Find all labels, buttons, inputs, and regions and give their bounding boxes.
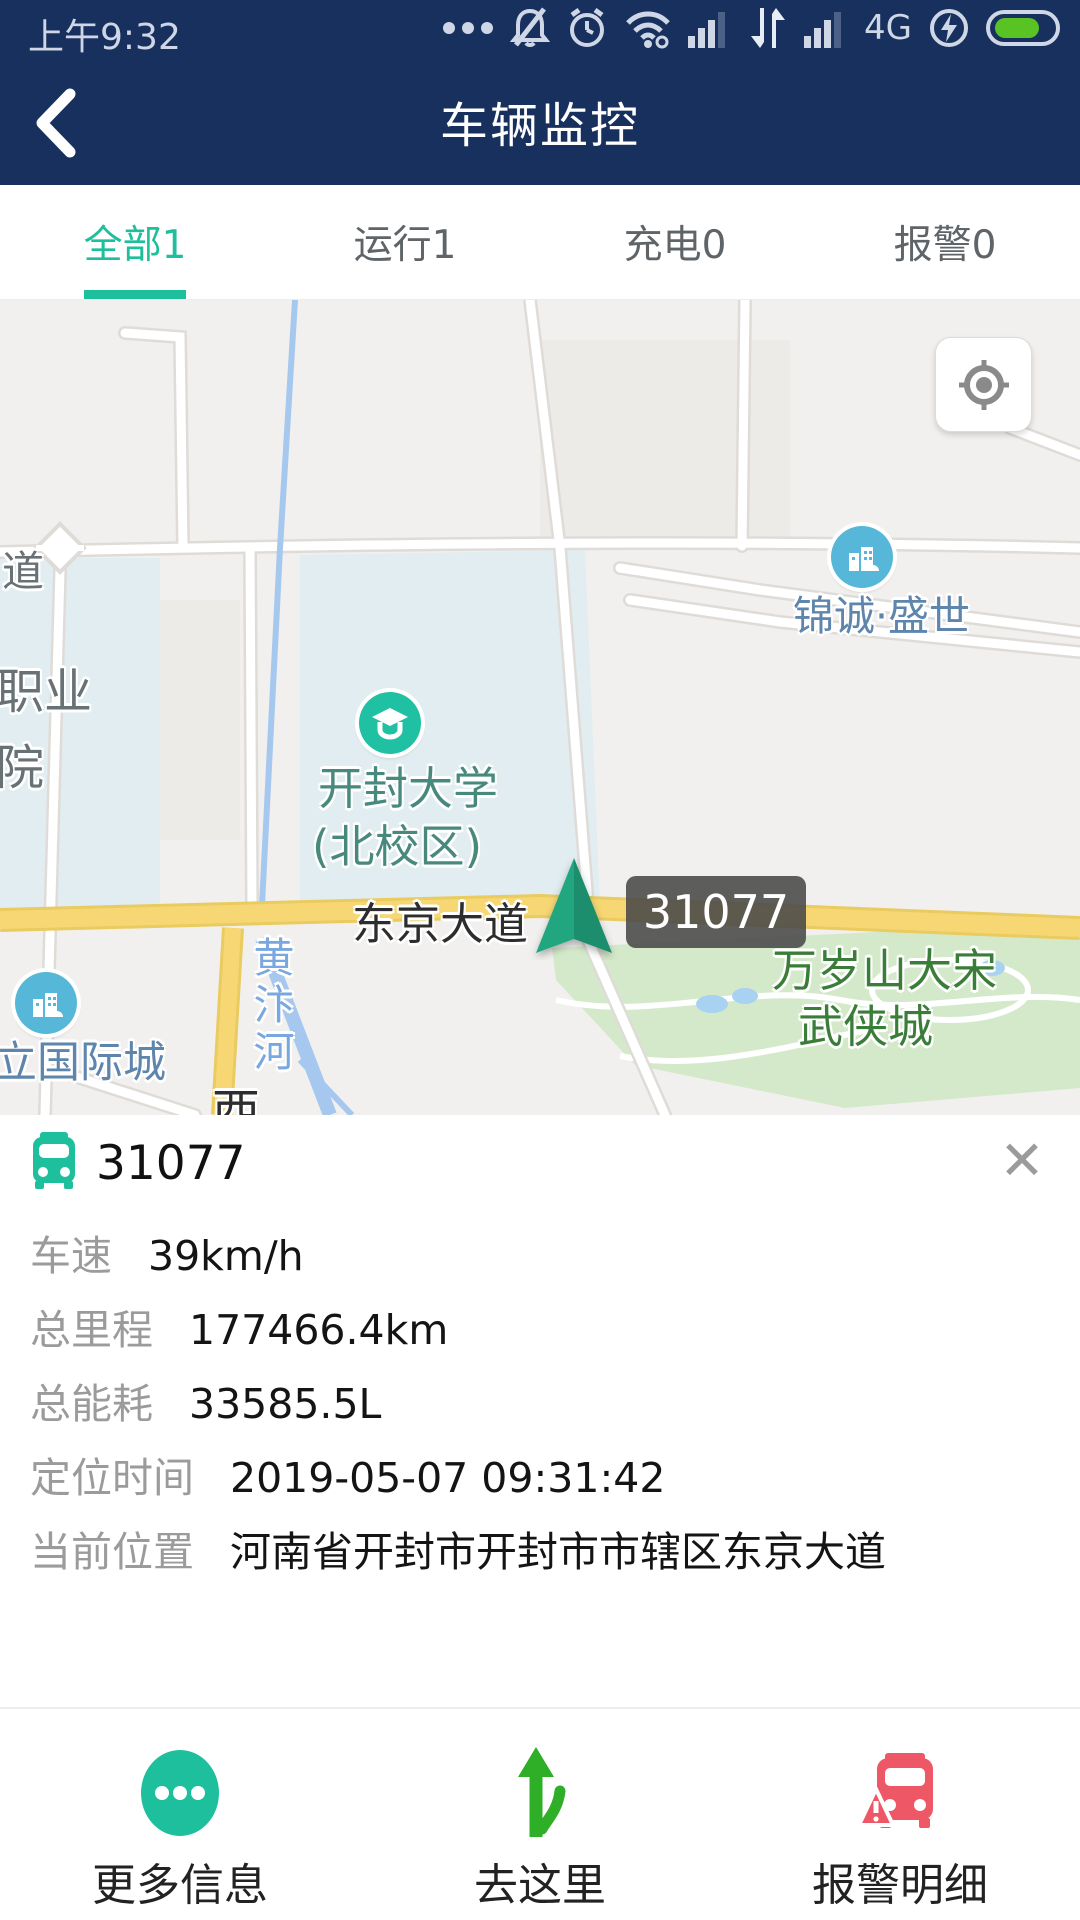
area-label-yuan: 院: [0, 728, 44, 798]
vehicle-filter-tabs: 全部1 运行1 充电0 报警0: [0, 185, 1080, 300]
park-label-line2: 武侠城: [798, 990, 933, 1055]
page-title: 车辆监控: [0, 86, 1080, 156]
wifi-icon: [624, 7, 672, 49]
tab-charging-label: 充电0: [624, 214, 727, 270]
status-icon-tray: 4G: [442, 0, 1060, 56]
vehicle-info-panel: 31077 ✕ 车速 39km/h 总里程 177466.4km 总能耗 335…: [0, 1115, 1080, 1707]
app-header: 车辆监控: [0, 56, 1080, 185]
bus-icon: [30, 1132, 78, 1190]
vehicle-tooltip[interactable]: 31077: [626, 876, 806, 948]
network-type-label: 4G: [864, 8, 912, 48]
road-label-dao: 道: [2, 538, 44, 599]
info-value: 河南省开封市开封市市辖区东京大道: [230, 1518, 886, 1578]
tab-all[interactable]: 全部1: [0, 185, 270, 299]
info-label: 车速: [30, 1222, 112, 1282]
alarm-detail-label: 报警明细: [812, 1849, 988, 1913]
signal-bars-icon: [688, 8, 732, 48]
status-bar: 上午9:32: [0, 0, 1080, 56]
info-label: 当前位置: [30, 1518, 194, 1578]
vehicle-id: 31077: [96, 1136, 246, 1191]
info-value: 2019-05-07 09:31:42: [230, 1454, 665, 1502]
vehicle-marker-icon[interactable]: [528, 852, 620, 960]
alarm-clock-icon: [566, 7, 608, 49]
data-arrows-icon: [748, 6, 788, 50]
more-info-button[interactable]: 更多信息: [0, 1709, 360, 1920]
river-label-huangbian: 黄汴河: [240, 936, 300, 1077]
poi-label-jincheng: 锦诚·盛世: [793, 582, 970, 642]
close-panel-button[interactable]: ✕: [992, 1130, 1052, 1190]
bottom-action-bar: 更多信息 去这里: [0, 1707, 1080, 1920]
charging-icon: [928, 7, 970, 49]
info-row-mileage: 总里程 177466.4km: [30, 1296, 448, 1356]
info-row-loctime: 定位时间 2019-05-07 09:31:42: [30, 1444, 665, 1504]
road-label-dongjing: 东京大道: [352, 888, 528, 952]
tab-running-label: 运行1: [354, 214, 457, 270]
tab-charging[interactable]: 充电0: [540, 185, 810, 299]
top-navy-block: 上午9:32: [0, 0, 1080, 185]
info-row-speed: 车速 39km/h: [30, 1222, 304, 1282]
info-row-energy: 总能耗 33585.5L: [30, 1370, 381, 1430]
info-value: 33585.5L: [189, 1380, 381, 1428]
poi-label-liguoji: 立国际城: [0, 1028, 166, 1090]
tab-all-label: 全部1: [84, 214, 187, 270]
go-here-label: 去这里: [474, 1849, 606, 1913]
road-label-xi: 西: [212, 1072, 260, 1115]
navigate-arrow-icon: [508, 1747, 572, 1839]
liguoji-poi-icon: [15, 972, 77, 1034]
more-notifications-icon: [442, 21, 494, 35]
poi-label-university-2: (北校区): [312, 810, 482, 875]
battery-icon: [986, 10, 1060, 46]
info-row-location: 当前位置 河南省开封市开封市市辖区东京大道: [30, 1518, 886, 1578]
alarm-detail-button[interactable]: 报警明细: [720, 1709, 1080, 1920]
tab-alarm[interactable]: 报警0: [810, 185, 1080, 299]
area-label-zhiye: 职业: [0, 652, 92, 722]
tab-running[interactable]: 运行1: [270, 185, 540, 299]
go-here-button[interactable]: 去这里: [360, 1709, 720, 1920]
tab-alarm-label: 报警0: [894, 214, 997, 270]
locate-me-button[interactable]: [935, 337, 1032, 432]
info-label: 定位时间: [30, 1444, 194, 1504]
active-tab-underline: [84, 290, 186, 299]
more-info-icon: [139, 1749, 221, 1837]
info-value: 39km/h: [148, 1232, 304, 1280]
panel-header: 31077 ✕: [0, 1130, 1080, 1200]
vehicle-monitor-screen: 上午9:32: [0, 0, 1080, 1920]
info-value: 177466.4km: [189, 1306, 448, 1354]
signal-bars-2-icon: [804, 8, 848, 48]
info-label: 总里程: [30, 1296, 153, 1356]
info-label: 总能耗: [30, 1370, 153, 1430]
status-time: 上午9:32: [28, 8, 181, 60]
mute-bell-icon: [510, 7, 550, 49]
poi-label-university-1: 开封大学: [318, 752, 498, 817]
residence-poi-icon: [831, 526, 893, 588]
university-poi-icon: [359, 692, 421, 754]
alarm-bus-icon: [859, 1751, 941, 1835]
more-info-label: 更多信息: [92, 1849, 268, 1913]
locate-target-icon: [956, 357, 1012, 413]
map-view[interactable]: 锦诚·盛世 开封大学 (北校区) 立国际城 道 职业 院 东京大道 黄汴河 西 …: [0, 300, 1080, 1115]
